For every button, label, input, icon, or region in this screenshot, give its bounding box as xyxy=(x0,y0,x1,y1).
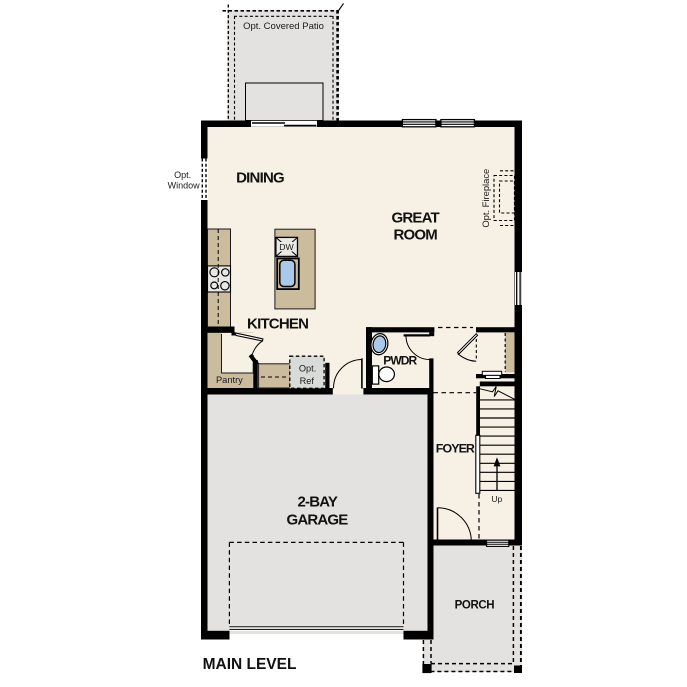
svg-text:Window: Window xyxy=(168,180,201,190)
svg-text:Ref: Ref xyxy=(300,376,315,386)
svg-text:MAIN LEVEL: MAIN LEVEL xyxy=(203,656,297,673)
svg-text:KITCHEN: KITCHEN xyxy=(247,316,308,333)
svg-text:DW: DW xyxy=(279,242,294,252)
svg-text:ROOM: ROOM xyxy=(393,227,437,244)
svg-text:PORCH: PORCH xyxy=(455,600,495,612)
svg-text:PWDR: PWDR xyxy=(383,354,417,368)
svg-text:GARAGE: GARAGE xyxy=(286,511,348,528)
svg-text:Pantry: Pantry xyxy=(216,375,243,385)
svg-text:GREAT: GREAT xyxy=(392,210,440,227)
svg-text:2-BAY: 2-BAY xyxy=(297,494,337,511)
svg-text:Up: Up xyxy=(491,494,502,504)
svg-text:FOYER: FOYER xyxy=(436,441,475,455)
svg-text:Opt.: Opt. xyxy=(299,364,316,374)
svg-text:Opt. Covered Patio: Opt. Covered Patio xyxy=(243,21,324,32)
svg-text:DINING: DINING xyxy=(236,170,284,187)
svg-text:Opt. Fireplace: Opt. Fireplace xyxy=(480,169,491,228)
svg-text:Opt.: Opt. xyxy=(174,170,191,180)
